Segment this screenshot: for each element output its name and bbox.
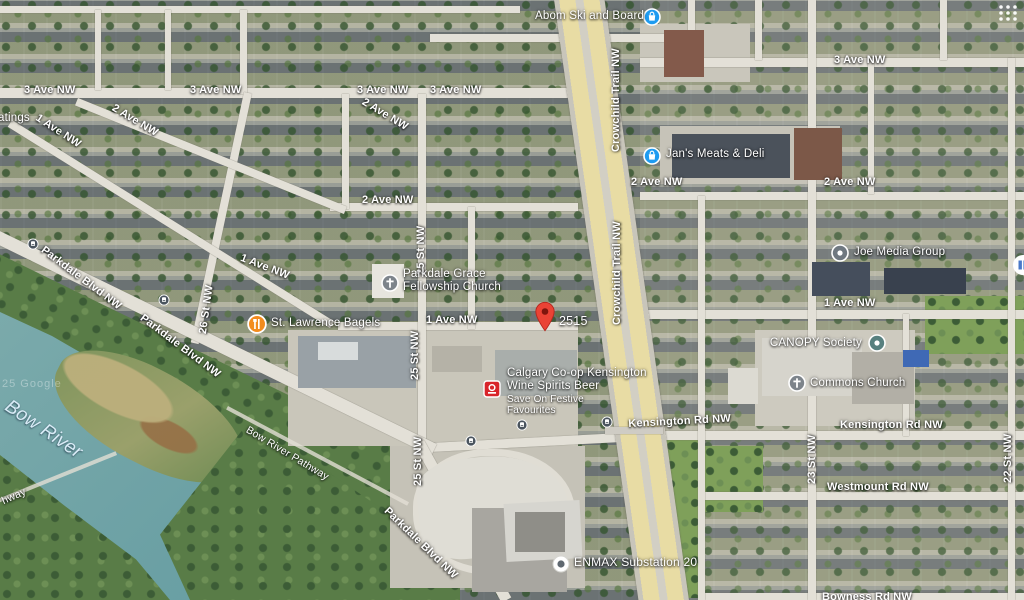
road <box>240 10 247 94</box>
street-label-2ave: 2 Ave NW <box>824 176 876 188</box>
street-label-crowchild: Crowchild Trail NW <box>611 221 623 325</box>
road-3-ave-west <box>0 88 575 98</box>
road <box>940 0 947 60</box>
poi-label-parkdale-grace[interactable]: Parkdale Grace Fellowship Church <box>403 268 501 294</box>
poi-label-jans[interactable]: Jan's Meats & Deli <box>666 148 764 161</box>
satellite-map-canvas[interactable]: 25 Google 3 Ave NW 3 Ave NW 3 Ave NW 3 A… <box>0 0 1024 600</box>
building <box>794 128 842 180</box>
church-icon[interactable] <box>381 274 399 292</box>
road <box>165 10 171 90</box>
road <box>342 94 349 209</box>
street-label-3ave: 3 Ave NW <box>24 84 76 96</box>
road <box>0 6 520 13</box>
road-westmount <box>700 492 1024 500</box>
generic-poi-icon[interactable] <box>831 244 849 262</box>
poi-label-coop[interactable]: Calgary Co-op Kensington Wine Spirits Be… <box>507 367 647 393</box>
poi-label-partial: atings <box>0 112 30 125</box>
poi-label-line: Parkdale Grace <box>403 268 501 281</box>
generic-poi-icon[interactable] <box>868 334 886 352</box>
bus-stop-icon[interactable] <box>516 419 528 431</box>
street-label-25st: 25 St NW <box>412 437 424 486</box>
poi-label-commons[interactable]: Commons Church <box>810 377 905 390</box>
playground <box>903 350 929 367</box>
poi-label-canopy[interactable]: CANOPY Society <box>730 337 862 350</box>
poi-label-enmax[interactable]: ENMAX Substation 20 <box>574 556 697 569</box>
street-label-1ave: 1 Ave NW <box>426 314 478 326</box>
road <box>95 10 101 90</box>
poi-label-line: Fellowship Church <box>403 281 501 294</box>
poi-label-joe-media[interactable]: Joe Media Group <box>854 246 945 259</box>
building <box>318 342 358 360</box>
street-label-2ave: 2 Ave NW <box>362 194 414 206</box>
poi-label-st-lawrence[interactable]: St. Lawrence Bagels <box>271 317 380 330</box>
poi-label-line: Wine Spirits Beer <box>507 380 647 393</box>
road-kensington-east <box>655 431 1024 440</box>
road-23-st <box>808 0 816 600</box>
building-ctrain-station <box>728 368 758 404</box>
bus-stop-icon[interactable] <box>158 294 170 306</box>
road-22-st <box>1008 58 1015 600</box>
coop-logo-icon[interactable] <box>483 380 501 398</box>
street-label-25st: 25 St NW <box>409 331 421 380</box>
poi-label-line: Calgary Co-op Kensington <box>507 367 647 380</box>
ad-text-coop[interactable]: Save On Festive Favourites <box>507 394 584 416</box>
building <box>432 346 482 372</box>
marker-label-2515[interactable]: 2515 <box>559 315 588 327</box>
bus-stop-icon[interactable] <box>27 238 39 250</box>
street-label-kensington: Kensington Rd NW <box>840 419 943 431</box>
road <box>430 34 668 42</box>
street-label-crowchild: Crowchild Trail NW <box>610 48 622 152</box>
road <box>755 0 762 60</box>
street-label-1ave: 1 Ave NW <box>824 297 876 309</box>
park-kensington <box>703 446 763 512</box>
road <box>868 58 874 194</box>
street-label-3ave: 3 Ave NW <box>430 84 482 96</box>
road <box>698 196 705 600</box>
bus-stop-icon[interactable] <box>465 435 477 447</box>
building <box>884 268 966 294</box>
street-label-23st: 23 St NW <box>806 435 818 484</box>
street-label-westmount: Westmount Rd NW <box>827 481 929 493</box>
library-pin-icon[interactable] <box>1012 254 1024 276</box>
substation-poi-icon[interactable] <box>552 555 570 573</box>
building <box>515 512 565 552</box>
street-label-22st: 22 St NW <box>1002 434 1014 483</box>
restaurant-icon[interactable] <box>247 314 267 334</box>
shopping-bag-icon[interactable] <box>643 147 661 165</box>
ad-line: Favourites <box>507 405 584 416</box>
street-label-3ave: 3 Ave NW <box>190 84 242 96</box>
church-icon[interactable] <box>788 374 806 392</box>
bus-stop-icon[interactable] <box>601 416 613 428</box>
street-label-bowness: Bowness Rd NW <box>822 591 912 600</box>
app-grid-icon[interactable] <box>998 4 1020 22</box>
ad-line: Save On Festive <box>507 394 584 405</box>
street-label-3ave: 3 Ave NW <box>834 54 886 66</box>
street-label-3ave: 3 Ave NW <box>357 84 409 96</box>
shopping-bag-icon[interactable] <box>643 8 661 26</box>
imagery-watermark: 25 Google <box>2 378 62 390</box>
red-map-pin[interactable] <box>534 301 556 333</box>
building-abom <box>664 30 704 77</box>
street-label-2ave: 2 Ave NW <box>631 176 683 188</box>
poi-label-abom[interactable]: Abom Ski and Board <box>535 10 644 23</box>
building-joe-media <box>812 262 870 296</box>
